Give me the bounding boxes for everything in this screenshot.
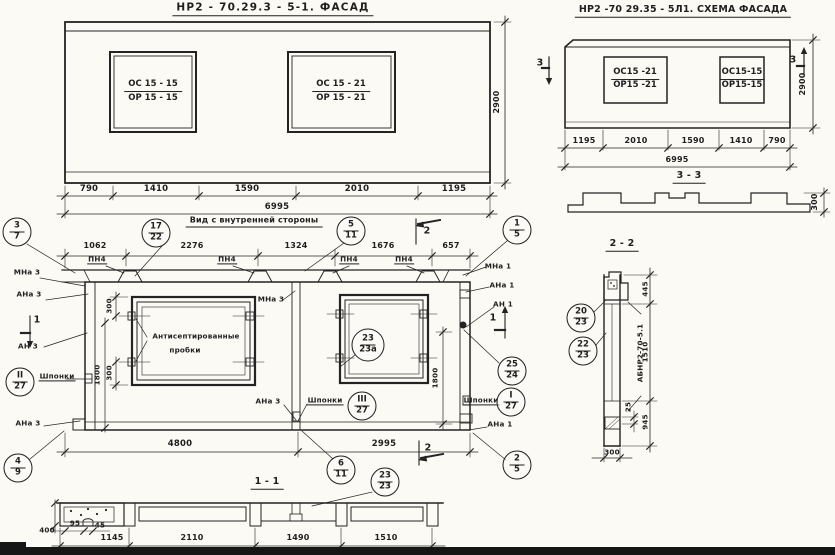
anchor-label-mna3: МНа 3 — [14, 268, 41, 275]
dim-label: 1410 — [729, 137, 752, 145]
dim-total: 6995 — [265, 203, 289, 212]
anchor-label-ana3: АНа 3 — [256, 397, 281, 404]
dim-label: 790 — [80, 185, 98, 194]
dim-label: 1145 — [100, 534, 123, 542]
section-1-1-label: 1 - 1 — [251, 477, 284, 490]
section-flag-1: 1 — [490, 313, 497, 323]
balloon-bottom: 5 — [510, 466, 525, 476]
dim-label: 1324 — [284, 242, 307, 250]
dim-thickness: 300 — [811, 193, 819, 210]
dim-label: 1410 — [144, 185, 168, 194]
dim-label: 45 — [95, 521, 105, 528]
keys-label: Шпонки — [39, 372, 76, 381]
dim-label: 2010 — [345, 185, 369, 194]
balloon-bottom: 27 — [504, 403, 519, 413]
facade-title: НР2 - 70.29.3 - 5-1. ФАСАД — [172, 2, 373, 16]
dim-label: 1195 — [442, 185, 466, 194]
dim-label: 945 — [641, 414, 648, 430]
dim-total: 6995 — [665, 156, 688, 164]
window-mark-top: ОС 15 - 21 — [312, 79, 370, 92]
detail-balloon-III-27: III27 — [348, 392, 377, 421]
window-mark-top: ОС15-15 — [720, 67, 765, 80]
balloon-bottom: 24 — [505, 372, 520, 382]
balloon-bottom: 23а — [359, 346, 377, 356]
window-mark-bottom: ОР 15 - 21 — [312, 93, 370, 105]
dim-label: 1510 — [374, 534, 397, 542]
dim-label: 1195 — [572, 137, 595, 145]
panel-mark-label: АБНР2-70-5.1 — [636, 324, 643, 382]
dim-label: 1590 — [235, 185, 259, 194]
dim-label: 2995 — [372, 440, 396, 449]
detail-balloon-3-7: 37 — [3, 218, 32, 247]
anchor-label-mna3: МНа 3 — [258, 295, 285, 302]
dim-label: 445 — [641, 281, 648, 297]
window-mark-1: ОС15 -21 ОР15 -21 — [611, 67, 659, 93]
window-mark-top: ОС15 -21 — [611, 67, 659, 80]
scheme-view-lines — [542, 34, 820, 170]
anchor-label-pn4: ПН4 — [394, 255, 414, 264]
window-mark-2: ОС 15 - 21 ОР 15 - 21 — [312, 79, 370, 105]
plugs-note-line1: Антисептированные — [152, 332, 239, 339]
detail-balloon-23-23: 2323 — [371, 468, 400, 497]
balloon-bottom: 23 — [576, 352, 591, 362]
detail-balloon-20-23: 2023 — [567, 304, 596, 333]
balloon-bottom: 23 — [378, 483, 393, 493]
anchor-label-pn4: ПН4 — [217, 255, 237, 264]
detail-balloon-25-24: 2524 — [498, 357, 527, 386]
window-mark-1: ОС 15 - 15 ОР 15 - 15 — [124, 79, 182, 105]
dim-label: 2110 — [180, 534, 203, 542]
balloon-bottom: 23 — [574, 319, 589, 329]
detail-balloon-22-23: 2223 — [569, 337, 598, 366]
window-mark-2: ОС15-15 ОР15-15 — [720, 67, 765, 93]
detail-balloon-17-22: 1722 — [142, 219, 171, 248]
keys-label: Шпонки — [307, 396, 344, 405]
drawing-sheet: НР2 - 70.29.3 - 5-1. ФАСАД ОС 15 - 15 ОР… — [0, 0, 835, 555]
window-mark-top: ОС 15 - 15 — [124, 79, 182, 92]
inner-view-title: Вид с внутренней стороны — [186, 217, 323, 228]
detail-balloon-2-5: 25 — [503, 451, 532, 480]
balloon-bottom: 11 — [344, 232, 359, 242]
dim-label: 400 — [39, 526, 55, 533]
section-2-2-lines — [592, 268, 657, 462]
window-mark-bottom: ОР 15 - 15 — [124, 93, 182, 105]
dim-label: 95 — [70, 519, 80, 526]
balloon-bottom: 22 — [149, 234, 164, 244]
window-mark-bottom: ОР15 -21 — [611, 81, 659, 93]
anchor-label-ana1: АНа 1 — [488, 420, 513, 427]
section-3-3-label: 3 - 3 — [673, 171, 706, 184]
detail-balloon-6-11: 611 — [327, 456, 356, 485]
anchor-label-an3: АН 3 — [18, 342, 38, 349]
dim-height: 2900 — [493, 90, 501, 113]
section-flag-2: 2 — [425, 443, 432, 453]
detail-balloon-4-9: 49 — [4, 454, 33, 483]
anchor-label-ana3: АНа 3 — [16, 419, 41, 426]
dim-label: 790 — [768, 137, 785, 145]
dim-label: 1676 — [371, 242, 394, 250]
anchor-label-ana1: АНа 1 — [490, 281, 515, 288]
scheme-title: НР2 -70 29.35 - 5Л1. СХЕМА ФАСАДА — [575, 5, 791, 18]
dim-label: 300 — [105, 298, 112, 314]
dim-label: 1800 — [431, 368, 438, 389]
section-flag-3-right: 3 — [790, 55, 797, 65]
anchor-label-an1: АН 1 — [493, 300, 513, 307]
balloon-bottom: 11 — [334, 471, 349, 481]
balloon-bottom: 5 — [510, 231, 525, 241]
dim-label: 657 — [442, 242, 459, 250]
dim-label: 2276 — [180, 242, 203, 250]
detail-balloon-23-23a: 2323а — [352, 329, 385, 362]
detail-balloon-I-27: I27 — [497, 388, 526, 417]
detail-balloon-1-5: 15 — [503, 216, 532, 245]
balloon-bottom: 27 — [13, 383, 28, 393]
balloon-bottom: 7 — [10, 233, 25, 243]
dim-label: 1490 — [286, 534, 309, 542]
dim-label: 2010 — [624, 137, 647, 145]
balloon-bottom: 9 — [11, 469, 26, 479]
dim-label: 300 — [604, 448, 620, 455]
plugs-note-line2: пробки — [169, 346, 200, 353]
dim-label: 25 — [624, 402, 631, 412]
dim-label: 1062 — [83, 242, 106, 250]
dim-height: 2900 — [799, 72, 807, 95]
window-mark-bottom: ОР15-15 — [720, 81, 765, 93]
keys-label: Шпонки — [463, 396, 500, 405]
section-3-3-lines — [568, 188, 830, 217]
dim-label: 300 — [105, 365, 112, 381]
anchor-label-pn4: ПН4 — [87, 255, 107, 264]
balloon-bottom: 27 — [355, 407, 370, 417]
dim-label: 1800 — [93, 365, 100, 386]
detail-balloon-5-11: 511 — [337, 217, 366, 246]
dim-label: 1590 — [681, 137, 704, 145]
section-flag-2: 2 — [424, 226, 431, 236]
anchor-label-mna1: МНа 1 — [485, 262, 512, 269]
detail-balloon-II-27: II27 — [6, 368, 35, 397]
section-2-2-label: 2 - 2 — [606, 239, 639, 252]
anchor-label-pn4: ПН4 — [339, 255, 359, 264]
dim-label: 4800 — [168, 440, 192, 449]
section-flag-1: 1 — [34, 315, 41, 325]
anchor-label-ana3: АНа 3 — [17, 290, 42, 297]
section-flag-3-left: 3 — [537, 58, 544, 68]
